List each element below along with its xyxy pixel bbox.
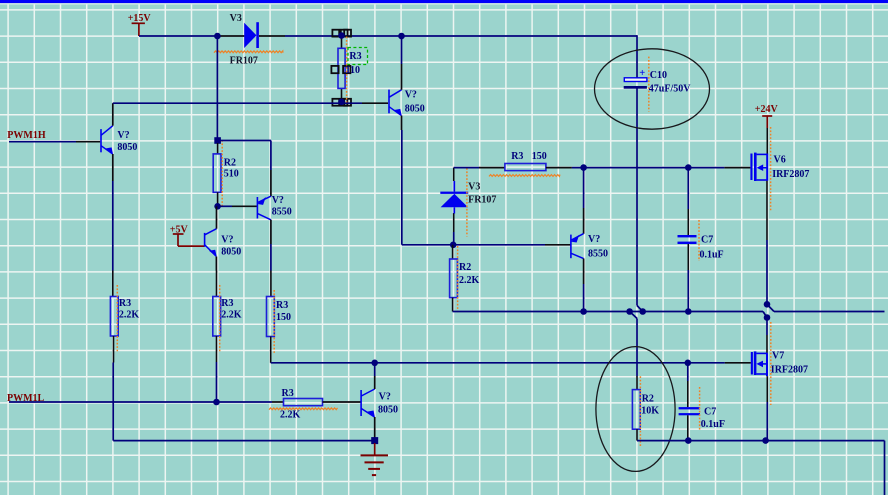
svg-text:2.2K: 2.2K bbox=[459, 275, 480, 286]
svg-text:2.2K: 2.2K bbox=[280, 410, 301, 421]
svg-text:C7: C7 bbox=[704, 407, 716, 418]
svg-text:V?: V? bbox=[117, 130, 129, 141]
svg-text:R2: R2 bbox=[459, 262, 471, 273]
svg-text:110: 110 bbox=[346, 65, 360, 76]
svg-text:8050: 8050 bbox=[405, 103, 425, 114]
svg-text:8050: 8050 bbox=[117, 142, 137, 153]
svg-text:10K: 10K bbox=[641, 406, 659, 417]
svg-text:R2: R2 bbox=[224, 158, 236, 169]
svg-text:C10: C10 bbox=[650, 70, 667, 81]
svg-text:510: 510 bbox=[224, 169, 239, 180]
svg-text:V6: V6 bbox=[774, 155, 786, 166]
svg-text:V?: V? bbox=[221, 235, 233, 246]
svg-text:R3: R3 bbox=[511, 151, 523, 162]
svg-text:IRF2807: IRF2807 bbox=[771, 365, 808, 376]
svg-text:150: 150 bbox=[532, 151, 547, 162]
svg-text:R2: R2 bbox=[642, 394, 654, 405]
svg-text:47uF/50V: 47uF/50V bbox=[649, 83, 691, 94]
svg-text:2.2K: 2.2K bbox=[221, 310, 242, 321]
svg-text:R3: R3 bbox=[282, 388, 294, 399]
svg-text:+24V: +24V bbox=[755, 104, 779, 115]
svg-text:+15V: +15V bbox=[128, 13, 152, 24]
svg-text:150: 150 bbox=[276, 312, 291, 323]
svg-text:V?: V? bbox=[588, 234, 600, 245]
svg-text:8050: 8050 bbox=[221, 247, 241, 258]
svg-text:FR107: FR107 bbox=[468, 194, 496, 205]
svg-text:8050: 8050 bbox=[378, 405, 398, 416]
svg-text:+: + bbox=[639, 68, 645, 79]
svg-text:PWM1H: PWM1H bbox=[7, 130, 46, 141]
svg-text:R3: R3 bbox=[119, 298, 131, 309]
svg-text:V3: V3 bbox=[230, 13, 242, 24]
svg-text:R3: R3 bbox=[221, 298, 233, 309]
svg-text:2.2K: 2.2K bbox=[119, 310, 139, 321]
svg-text:V?: V? bbox=[272, 195, 284, 206]
svg-text:FR107: FR107 bbox=[230, 56, 258, 67]
svg-text:V?: V? bbox=[379, 392, 391, 403]
svg-text:0.1uF: 0.1uF bbox=[701, 419, 725, 430]
svg-text:R3: R3 bbox=[276, 300, 288, 311]
svg-text:8550: 8550 bbox=[272, 206, 292, 217]
svg-text:IRF2807: IRF2807 bbox=[772, 169, 809, 180]
svg-text:R3: R3 bbox=[349, 51, 361, 62]
svg-text:8550: 8550 bbox=[588, 249, 608, 260]
svg-text:V3: V3 bbox=[468, 182, 480, 193]
svg-text:C7: C7 bbox=[701, 235, 713, 246]
svg-text:0.1uF: 0.1uF bbox=[700, 250, 724, 261]
svg-text:V7: V7 bbox=[772, 351, 784, 362]
svg-text:V?: V? bbox=[405, 90, 417, 101]
